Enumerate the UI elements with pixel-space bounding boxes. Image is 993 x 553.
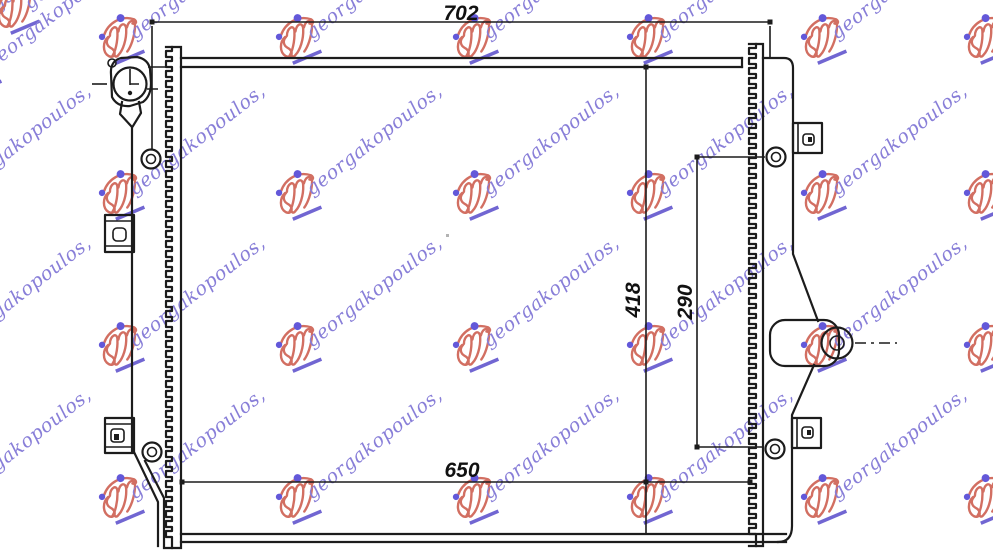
scan-speck [446,234,449,237]
radiator-technical-drawing: georgakopoulos, georgakopoulos, georgako… [0,0,993,553]
bolt-top-left [142,150,161,169]
part-outline-drawing: 702 650 418 290 [0,0,993,553]
left-tank [132,47,181,548]
core-top-edge [181,58,742,67]
filler-cap [92,57,167,127]
bolt-bottom-right-inner [771,445,780,454]
dimension-end-marks [150,20,773,485]
right-tank-outline [763,58,818,542]
bracket-bottom-left-flanges [105,424,134,447]
core-bottom-edge [181,534,786,542]
bracket-top-left-hole [113,228,126,241]
cap-cross-mark [130,69,139,85]
dim-label-418: 418 [622,282,645,318]
bracket-top-left-flanges [105,221,134,246]
left-crimp-zigzag [166,47,172,548]
bracket-top-right-pin [808,137,812,142]
dim-label-650: 650 [444,459,479,482]
pipe-body [770,320,839,366]
outlet-pipe [770,320,897,366]
bolt-bottom-left [143,443,162,462]
left-tank-bottom-taper [134,452,164,546]
bolt-top-right-inner [772,153,781,162]
dim-label-702: 702 [443,2,478,25]
cap-dot [128,91,132,95]
pipe-opening-inner [830,336,844,350]
dimension-lines [150,20,773,534]
bolt-top-left-inner [147,155,156,164]
right-crimp-zigzag [749,44,756,546]
right-tank [749,44,822,546]
cap-neck-outline [111,57,151,106]
bolt-bottom-left-inner [148,448,157,457]
dim-702-line [152,22,770,150]
bracket-bottom-left-pin [114,434,119,440]
bolt-top-right [767,148,786,167]
left-mounts [105,150,162,462]
bracket-bottom-right-pin [807,430,811,435]
bolt-bottom-right [766,440,785,459]
dim-label-290: 290 [674,284,697,320]
pipe-opening-outer [822,328,853,359]
